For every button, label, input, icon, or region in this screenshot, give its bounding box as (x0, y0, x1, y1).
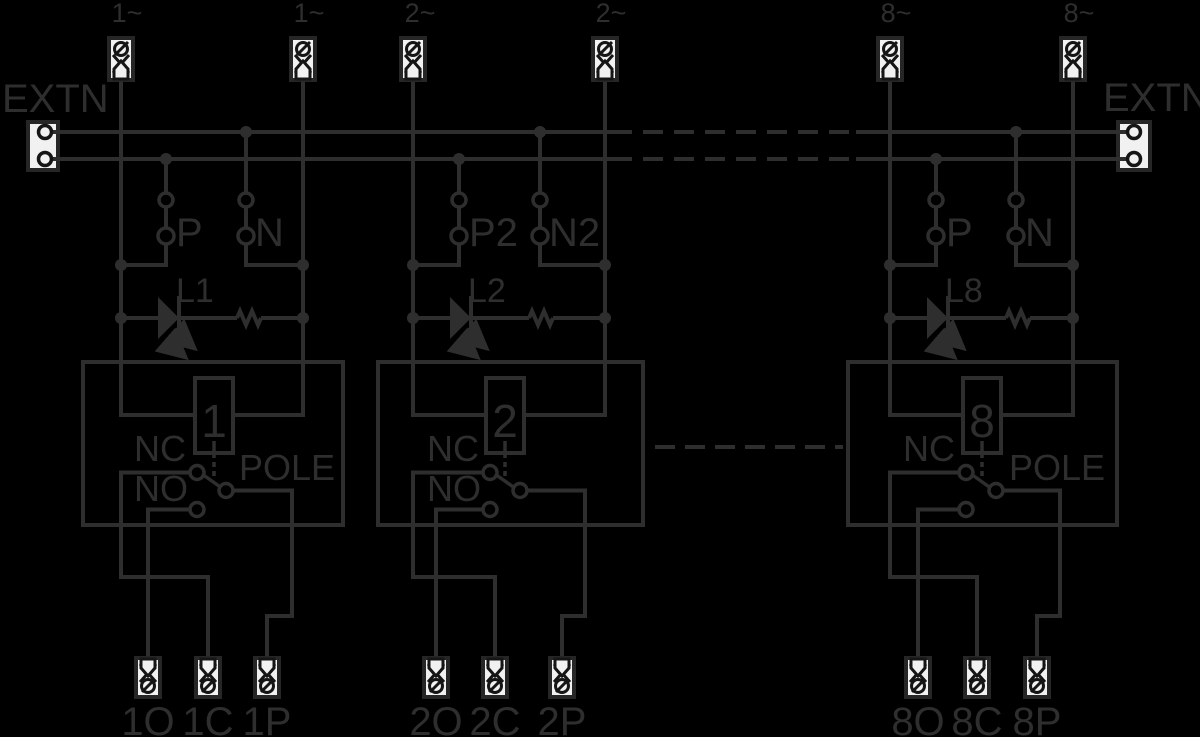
top-terminal (1061, 38, 1085, 80)
junction-dot (115, 259, 127, 271)
top-terminal-label: 1~ (112, 0, 143, 28)
nc-contact (483, 466, 497, 480)
no-label: NO (427, 468, 481, 509)
no-contact (483, 503, 497, 517)
extn-label-left: EXTN (2, 77, 109, 121)
junction-dot (1067, 312, 1079, 324)
extn-contact (1128, 153, 1141, 166)
junction-dot (407, 259, 419, 271)
top-terminal-label: 8~ (1064, 0, 1095, 28)
neutral-break-contact (1008, 228, 1024, 244)
coil-number: 1 (201, 395, 227, 447)
neutral-label: N2 (549, 211, 600, 255)
junction-dot (884, 312, 896, 324)
phase-break-contact (158, 228, 174, 244)
bottom-terminal (1025, 658, 1049, 697)
bottom-terminal (483, 658, 507, 697)
junction-dot (240, 126, 252, 138)
neutral-break-contact (239, 193, 253, 207)
bottom-terminal (424, 658, 448, 697)
wiring (413, 80, 605, 658)
nc-label: NC (903, 428, 955, 469)
led-label: L2 (468, 272, 506, 310)
top-terminal (401, 38, 425, 80)
top-terminal-label: 2~ (405, 0, 436, 28)
bottom-terminal-label: 8P (1013, 700, 1062, 737)
junction-dot (1067, 259, 1079, 271)
pole-contact (219, 484, 233, 498)
led-emission-arrow (938, 343, 953, 356)
relay-channel-1: 1~ 1~ P N L1 1 NC NO POLE 1O 1C 1P (83, 0, 343, 737)
bottom-terminal (196, 658, 220, 697)
top-terminal-label: 1~ (294, 0, 325, 28)
bottom-terminal-label: 1C (182, 700, 233, 737)
junction-dot (1010, 126, 1022, 138)
phase-break-contact (929, 193, 943, 207)
extn-contact (39, 153, 52, 166)
led-emission-arrow (169, 343, 184, 356)
junction-dot (599, 259, 611, 271)
junction-dot (160, 153, 172, 165)
top-terminal (291, 38, 315, 80)
top-terminal (878, 38, 902, 80)
nc-contact (959, 466, 973, 480)
neutral-break-contact (532, 228, 548, 244)
junction-dot (297, 312, 309, 324)
pole-label: POLE (239, 447, 335, 488)
junction-dot (297, 259, 309, 271)
junction-dot (884, 259, 896, 271)
bottom-terminal-label: 2C (469, 700, 520, 737)
relay-channel-2: 2~ 2~ P2 N2 L2 2 NC NO 2O 2C 2P (378, 0, 643, 737)
extn-contact (1128, 126, 1141, 139)
nc-label: NC (427, 428, 479, 469)
bottom-terminal-label: 8O (891, 700, 944, 737)
wiring (121, 80, 303, 658)
neutral-break-contact (533, 193, 547, 207)
bottom-terminal (136, 658, 160, 697)
coil-number: 8 (969, 395, 995, 447)
top-terminal-label: 8~ (881, 0, 912, 28)
bottom-terminal (965, 658, 989, 697)
pole-contact (989, 484, 1003, 498)
no-contact (190, 503, 204, 517)
relay-channel-8: 8~ 8~ P N L8 8 NC POLE 8O 8C 8P (848, 0, 1117, 737)
neutral-break-contact (238, 228, 254, 244)
top-terminal (593, 38, 617, 80)
junction-dot (115, 312, 127, 324)
led-emission-arrow (470, 334, 485, 347)
phase-label: P (946, 211, 973, 255)
coil-number: 2 (492, 395, 518, 447)
junction-dot (534, 126, 546, 138)
phase-break-contact (928, 228, 944, 244)
neutral-label: N (1025, 211, 1054, 255)
led-emission-arrow (178, 334, 193, 347)
bottom-terminal-label: 8C (951, 700, 1002, 737)
extn-contact (39, 126, 52, 139)
wiring (890, 80, 1073, 658)
bottom-terminal (906, 658, 930, 697)
bottom-terminal-label: 2O (409, 700, 462, 737)
pole-label: POLE (1009, 447, 1105, 488)
bottom-terminal (255, 658, 279, 697)
neutral-label: N (255, 211, 284, 255)
phase-label: P (176, 211, 203, 255)
bottom-terminal (550, 658, 574, 697)
junction-dot (407, 312, 419, 324)
led-label: L1 (176, 272, 214, 310)
led-emission-arrow (947, 334, 962, 347)
relay-wiring-diagram: EXTN EXTN 1~ 1~ P N L1 (0, 0, 1200, 737)
junction-dot (930, 153, 942, 165)
top-terminal (109, 38, 133, 80)
led-emission-arrow (461, 343, 476, 356)
phase-break-contact (159, 193, 173, 207)
bottom-terminal-label: 1O (121, 700, 174, 737)
extn-label-right: EXTN (1103, 76, 1200, 120)
top-terminal-label: 2~ (596, 0, 627, 28)
phase-break-contact (452, 193, 466, 207)
no-label: NO (134, 468, 188, 509)
neutral-break-contact (1009, 193, 1023, 207)
nc-contact (190, 466, 204, 480)
no-contact (959, 503, 973, 517)
nc-label: NC (134, 428, 186, 469)
phase-label: P2 (469, 211, 518, 255)
pole-contact (513, 484, 527, 498)
bottom-terminal-label: 2P (538, 700, 587, 737)
bottom-terminal-label: 1P (243, 700, 292, 737)
junction-dot (453, 153, 465, 165)
phase-break-contact (451, 228, 467, 244)
led-label: L8 (945, 272, 983, 310)
junction-dot (599, 312, 611, 324)
